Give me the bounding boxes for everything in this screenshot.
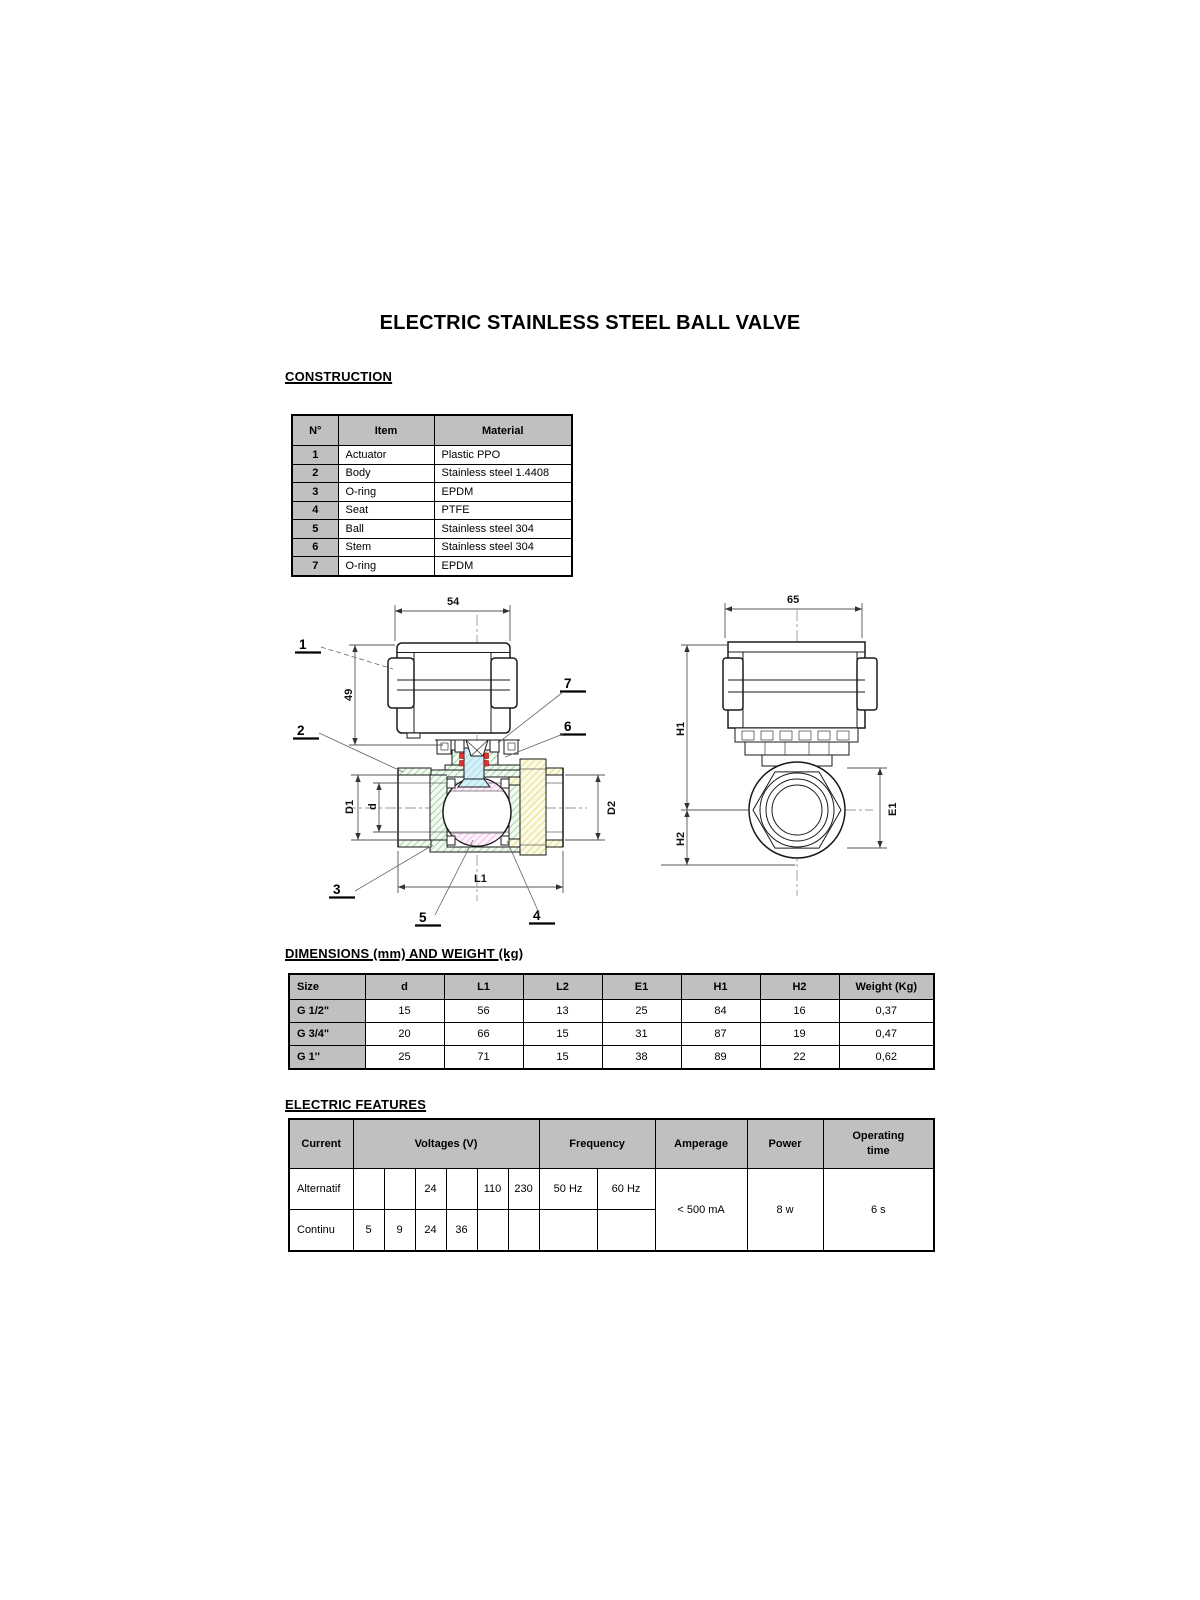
col-header-e1: E1 <box>602 974 681 1000</box>
voltage-cell: 9 <box>384 1210 415 1252</box>
svg-text:6: 6 <box>564 719 572 734</box>
part-label-5: 5 <box>415 840 473 926</box>
part-number: 1 <box>292 446 338 465</box>
amperage-value: < 500 mA <box>655 1169 747 1252</box>
mounting-plate <box>745 742 849 755</box>
voltage-cell <box>477 1210 508 1252</box>
size-label: G 1/2" <box>289 1000 365 1023</box>
part-item: Stem <box>338 538 434 557</box>
dim-value: 15 <box>365 1000 444 1023</box>
col-header-amperage: Amperage <box>655 1119 747 1169</box>
col-header-l1: L1 <box>444 974 523 1000</box>
dim-value: 19 <box>760 1023 839 1046</box>
part-number: 5 <box>292 520 338 539</box>
svg-text:D1: D1 <box>344 800 356 814</box>
left-technical-drawing: 54 49 D1 d <box>285 585 620 945</box>
part-label-2: 2 <box>293 723 403 772</box>
svg-text:d: d <box>367 803 379 810</box>
col-header-h1: H1 <box>681 974 760 1000</box>
dimension-l1: L1 <box>398 851 563 893</box>
svg-text:1: 1 <box>299 637 307 652</box>
part-material: EPDM <box>434 557 572 576</box>
part-label-1: 1 <box>295 637 393 669</box>
size-label: G 1'' <box>289 1046 365 1070</box>
voltage-cell <box>508 1210 539 1252</box>
electric-heading: ELECTRIC FEATURES <box>285 1097 426 1112</box>
table-row: 2 Body Stainless steel 1.4408 <box>292 464 572 483</box>
dimension-e1: E1 <box>847 768 899 848</box>
part-item: Actuator <box>338 446 434 465</box>
valve-end-flange <box>749 762 845 858</box>
part-number: 3 <box>292 483 338 502</box>
dimensions-heading: DIMENSIONS (mm) AND WEIGHT (kg) <box>285 946 523 961</box>
voltage-cell: 5 <box>353 1210 384 1252</box>
dim-value: 66 <box>444 1023 523 1046</box>
dimensions-header-row: Size d L1 L2 E1 H1 H2 Weight (Kg) <box>289 974 934 1000</box>
svg-text:2: 2 <box>297 723 305 738</box>
part-item: Body <box>338 464 434 483</box>
dim-value: 20 <box>365 1023 444 1046</box>
right-pipe-wall-top <box>546 768 563 775</box>
part-number: 2 <box>292 464 338 483</box>
dimension-d: d <box>367 783 398 832</box>
table-row: 3 O-ring EPDM <box>292 483 572 502</box>
table-row: 4 Seat PTFE <box>292 501 572 520</box>
dimension-width-65: 65 <box>725 594 862 638</box>
col-header-current: Current <box>289 1119 353 1169</box>
svg-text:H1: H1 <box>675 722 687 736</box>
frequency-cell: 60 Hz <box>597 1169 655 1210</box>
mounting-bracket <box>435 740 520 756</box>
right-technical-drawing: 65 H1 H2 E1 <box>635 580 945 925</box>
dimension-d2: D2 <box>565 775 618 840</box>
table-row: G 3/4" 20 66 15 31 87 19 0,47 <box>289 1023 934 1046</box>
page-title: ELECTRIC STAINLESS STEEL BALL VALVE <box>260 312 920 335</box>
construction-table: N° Item Material 1 Actuator Plastic PPO … <box>291 414 573 577</box>
datasheet-page: ELECTRIC STAINLESS STEEL BALL VALVE CONS… <box>0 0 1200 1600</box>
current-type: Continu <box>289 1210 353 1252</box>
svg-text:D2: D2 <box>606 801 618 815</box>
part-material: Plastic PPO <box>434 446 572 465</box>
left-pipe-wall-bottom <box>398 840 431 847</box>
table-row: 5 Ball Stainless steel 304 <box>292 520 572 539</box>
size-label: G 3/4" <box>289 1023 365 1046</box>
part-material: Stainless steel 1.4408 <box>434 464 572 483</box>
electric-header-row: Current Voltages (V) Frequency Amperage … <box>289 1119 934 1169</box>
svg-text:65: 65 <box>787 594 799 606</box>
dim-value: 89 <box>681 1046 760 1070</box>
voltage-cell: 230 <box>508 1169 539 1210</box>
frequency-cell <box>539 1210 597 1252</box>
dim-value: 13 <box>523 1000 602 1023</box>
col-header-size: Size <box>289 974 365 1000</box>
dim-value: 25 <box>602 1000 681 1023</box>
table-row: G 1/2" 15 56 13 25 84 16 0,37 <box>289 1000 934 1023</box>
construction-heading: CONSTRUCTION <box>285 369 392 384</box>
dim-value: 71 <box>444 1046 523 1070</box>
part-material: PTFE <box>434 501 572 520</box>
power-value: 8 w <box>747 1169 823 1252</box>
dimension-width-54: 54 <box>395 596 510 641</box>
svg-text:3: 3 <box>333 882 341 897</box>
col-header-l2: L2 <box>523 974 602 1000</box>
seat-right <box>501 779 509 788</box>
electric-features-table: Current Voltages (V) Frequency Amperage … <box>288 1118 935 1252</box>
col-header-frequency: Frequency <box>539 1119 655 1169</box>
col-header-item: Item <box>338 415 434 446</box>
svg-text:E1: E1 <box>887 803 899 816</box>
dim-value: 56 <box>444 1000 523 1023</box>
svg-text:7: 7 <box>564 676 572 691</box>
dim-value: 84 <box>681 1000 760 1023</box>
seat-left <box>447 779 455 788</box>
col-header-weight: Weight (Kg) <box>839 974 934 1000</box>
voltage-cell: 24 <box>415 1169 446 1210</box>
dim-value: 0,37 <box>839 1000 934 1023</box>
part-item: Ball <box>338 520 434 539</box>
dimensions-table: Size d L1 L2 E1 H1 H2 Weight (Kg) G 1/2"… <box>288 973 935 1070</box>
right-pipe-wall-bottom <box>546 840 563 847</box>
svg-text:H2: H2 <box>675 832 687 846</box>
table-row: 6 Stem Stainless steel 304 <box>292 538 572 557</box>
col-header-operating-time: Operating time <box>823 1119 934 1169</box>
voltage-cell: 36 <box>446 1210 477 1252</box>
voltage-cell: 110 <box>477 1169 508 1210</box>
frequency-cell <box>597 1210 655 1252</box>
part-number: 4 <box>292 501 338 520</box>
table-row: 7 O-ring EPDM <box>292 557 572 576</box>
part-number: 6 <box>292 538 338 557</box>
col-header-h2: H2 <box>760 974 839 1000</box>
svg-text:49: 49 <box>343 689 355 701</box>
col-header-d: d <box>365 974 444 1000</box>
voltage-cell <box>446 1169 477 1210</box>
col-header-material: Material <box>434 415 572 446</box>
table-row-alternatif: Alternatif 24 110 230 50 Hz 60 Hz < 500 … <box>289 1169 934 1210</box>
actuator-end-view <box>723 642 877 766</box>
svg-text:54: 54 <box>447 596 460 608</box>
col-header-n: N° <box>292 415 338 446</box>
table-row: G 1'' 25 71 15 38 89 22 0,62 <box>289 1046 934 1070</box>
construction-header-row: N° Item Material <box>292 415 572 446</box>
dim-value: 0,47 <box>839 1023 934 1046</box>
part-material: Stainless steel 304 <box>434 538 572 557</box>
dim-value: 87 <box>681 1023 760 1046</box>
col-header-power: Power <box>747 1119 823 1169</box>
dim-value: 15 <box>523 1046 602 1070</box>
voltage-cell <box>353 1169 384 1210</box>
dim-value: 0,62 <box>839 1046 934 1070</box>
oring-stem <box>460 753 465 759</box>
part-item: O-ring <box>338 557 434 576</box>
part-material: Stainless steel 304 <box>434 520 572 539</box>
dim-value: 22 <box>760 1046 839 1070</box>
current-type: Alternatif <box>289 1169 353 1210</box>
dim-value: 25 <box>365 1046 444 1070</box>
svg-text:5: 5 <box>419 910 427 925</box>
voltage-cell <box>384 1169 415 1210</box>
part-material: EPDM <box>434 483 572 502</box>
frequency-cell: 50 Hz <box>539 1169 597 1210</box>
part-item: O-ring <box>338 483 434 502</box>
operating-time-value: 6 s <box>823 1169 934 1252</box>
dim-value: 15 <box>523 1023 602 1046</box>
svg-text:4: 4 <box>533 908 541 923</box>
actuator-side-view <box>388 643 517 738</box>
voltage-cell: 24 <box>415 1210 446 1252</box>
part-item: Seat <box>338 501 434 520</box>
dim-value: 38 <box>602 1046 681 1070</box>
part-number: 7 <box>292 557 338 576</box>
part-label-3: 3 <box>329 845 433 898</box>
dim-value: 31 <box>602 1023 681 1046</box>
left-pipe-wall-top <box>398 768 431 775</box>
svg-text:L1: L1 <box>474 873 487 885</box>
dim-value: 16 <box>760 1000 839 1023</box>
table-row: 1 Actuator Plastic PPO <box>292 446 572 465</box>
union-nut <box>520 759 546 855</box>
col-header-voltages: Voltages (V) <box>353 1119 539 1169</box>
